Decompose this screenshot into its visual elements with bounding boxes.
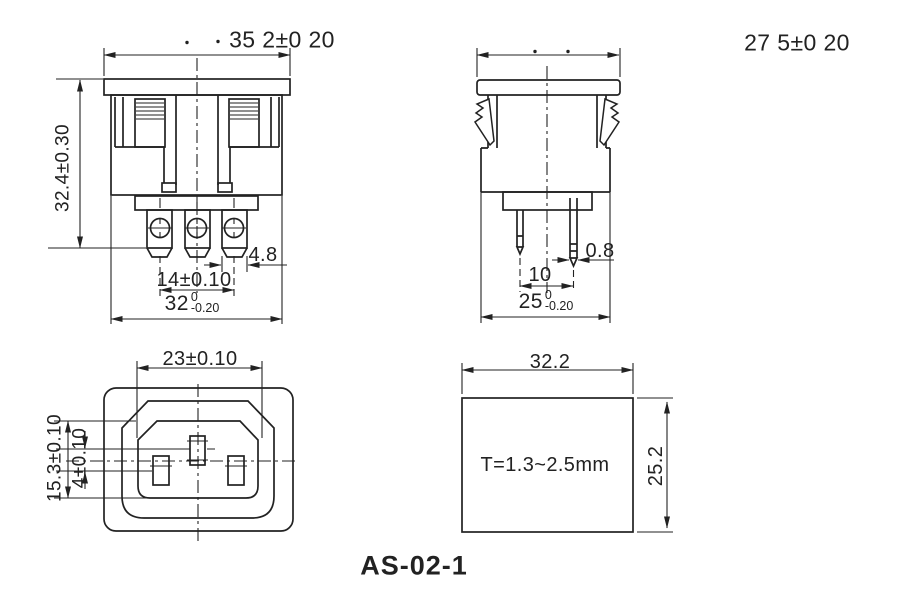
dim-side-body-width: 25 0 -0.20 bbox=[519, 290, 574, 312]
side-pins bbox=[517, 198, 577, 266]
cutout-view-drawing bbox=[462, 363, 673, 532]
dim-front-body-width: 32 0 -0.20 bbox=[165, 292, 220, 314]
dim-cutout-height: 25.2 bbox=[646, 446, 666, 487]
face-view-drawing bbox=[54, 361, 298, 541]
line-art bbox=[0, 0, 900, 605]
technical-drawing-canvas: 35 2±0 20 32.4±0.30 4.8 14±0.10 32 0 -0.… bbox=[0, 0, 900, 605]
dim-front-body-width-tolerance: 0 -0.20 bbox=[191, 292, 220, 314]
dim-front-terminal-spacing: 14±0.10 bbox=[157, 270, 232, 290]
dim-face-recess-width: 23±0.10 bbox=[163, 349, 238, 369]
dim-cutout-panel-thickness: T=1.3~2.5mm bbox=[481, 455, 610, 475]
side-body-lower bbox=[481, 148, 610, 192]
front-right-clip bbox=[218, 97, 279, 192]
dim-side-body-width-value: 25 bbox=[519, 291, 543, 312]
side-right-snap-clip bbox=[600, 99, 619, 145]
dim-front-overall-height: 32.4±0.30 bbox=[54, 124, 73, 212]
dim-face-recess-height: 15.3±0.10 bbox=[46, 414, 65, 502]
dim-front-terminal-width: 4.8 bbox=[248, 245, 277, 265]
drawing-title: AS-02-1 bbox=[360, 553, 468, 580]
dim-side-pin-thickness: 0.8 bbox=[585, 241, 614, 261]
dim-face-pin-offset: 4±0.10 bbox=[71, 428, 90, 488]
dim-side-flange-width: 27 5±0 20 bbox=[744, 32, 850, 55]
dim-front-body-width-value: 32 bbox=[165, 293, 189, 314]
dim-cutout-width: 32.2 bbox=[530, 352, 571, 372]
dim-side-body-width-tolerance: 0 -0.20 bbox=[545, 290, 574, 312]
side-left-snap-clip bbox=[475, 99, 494, 145]
dim-front-flange-width: 35 2±0 20 bbox=[229, 29, 335, 52]
dim-side-pin-spacing: 10 bbox=[528, 265, 551, 285]
side-flange bbox=[477, 80, 620, 95]
cutout-dimension-lines bbox=[462, 363, 673, 532]
front-left-clip bbox=[115, 97, 176, 192]
